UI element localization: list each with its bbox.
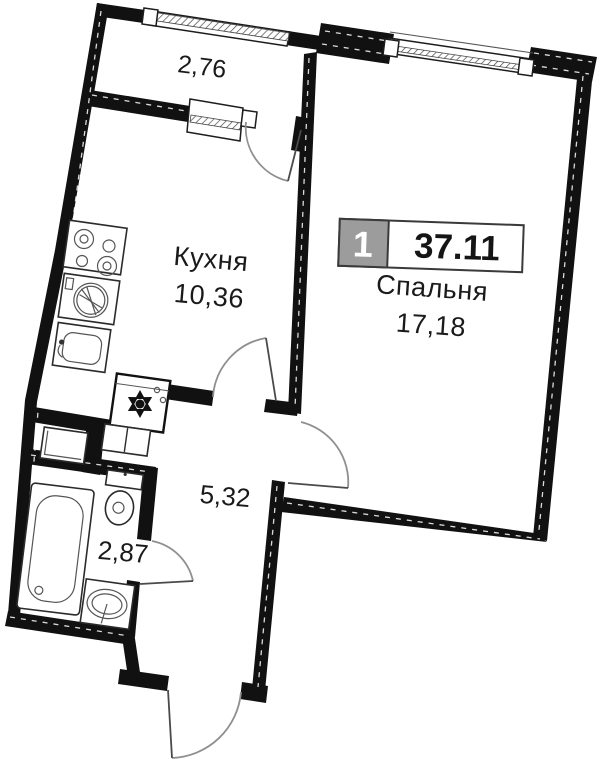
balcony-door — [246, 122, 301, 181]
bathroom-area-label: 2,87 — [97, 535, 150, 569]
washing-machine — [58, 273, 120, 324]
wall-kitchen-bedroom — [288, 52, 317, 414]
balcony-window-endcap — [142, 8, 158, 26]
wall-vent-to-door — [165, 384, 214, 406]
balcony-door-endcap — [241, 110, 257, 128]
wall-hallway-right — [252, 480, 285, 691]
bathroom-sink — [80, 579, 135, 629]
floor-plan-svg: 1 37.11 2,76 Кухня 10,36 Спальня 17,18 5… — [0, 0, 600, 763]
cabinet — [101, 424, 150, 456]
badge-room-count: 1 — [352, 223, 373, 265]
bedroom-window-endcap-left — [383, 39, 399, 57]
wall-balcony-top-right — [286, 31, 321, 50]
wall-balcony-kitchen — [88, 90, 190, 122]
hallway-area-label: 5,32 — [199, 479, 252, 513]
wall-block-junction — [316, 23, 394, 64]
bedroom-area-label: 17,18 — [395, 308, 467, 343]
toilet — [100, 470, 143, 527]
kitchen-area-label: 10,36 — [173, 278, 245, 314]
bedroom-door — [288, 422, 348, 488]
bedroom-name-label: Спальня — [375, 269, 489, 307]
balcony-area-label: 2,76 — [176, 50, 228, 84]
kitchen-fixtures — [52, 220, 170, 432]
kitchen-door — [213, 338, 276, 401]
floor-plan: 1 37.11 2,76 Кухня 10,36 Спальня 17,18 5… — [0, 0, 600, 763]
wall-right — [533, 68, 593, 541]
wall-bedroom-bottom — [281, 497, 547, 542]
badge-total-area: 37.11 — [413, 226, 500, 268]
wall-entry-step-horizontal — [118, 669, 169, 691]
kitchen-name-label: Кухня — [173, 241, 250, 277]
kitchen-sink — [52, 322, 110, 372]
doors — [140, 122, 348, 758]
stove — [63, 220, 127, 275]
area-badge: 1 37.11 — [338, 219, 524, 272]
shelf-unit — [40, 427, 88, 464]
bedroom-window-endcap-right — [518, 58, 534, 76]
entry-door — [168, 690, 241, 758]
